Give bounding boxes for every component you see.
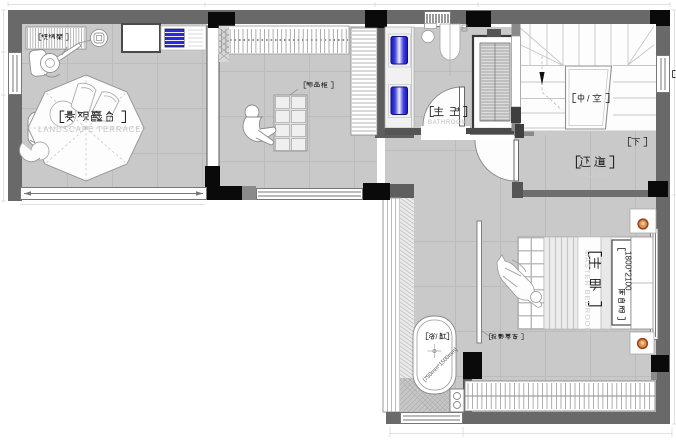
svg-text:LANDSCAPE TERRACE: LANDSCAPE TERRACE xyxy=(38,125,142,134)
svg-text:MASTER BEDROOM: MASTER BEDROOM xyxy=(583,250,592,335)
svg-text:/: / xyxy=(436,334,438,341)
svg-text:1800*2100: 1800*2100 xyxy=(624,251,633,291)
svg-text:BATHROOM: BATHROOM xyxy=(428,120,467,126)
svg-text:HALLWAY: HALLWAY xyxy=(578,172,613,179)
